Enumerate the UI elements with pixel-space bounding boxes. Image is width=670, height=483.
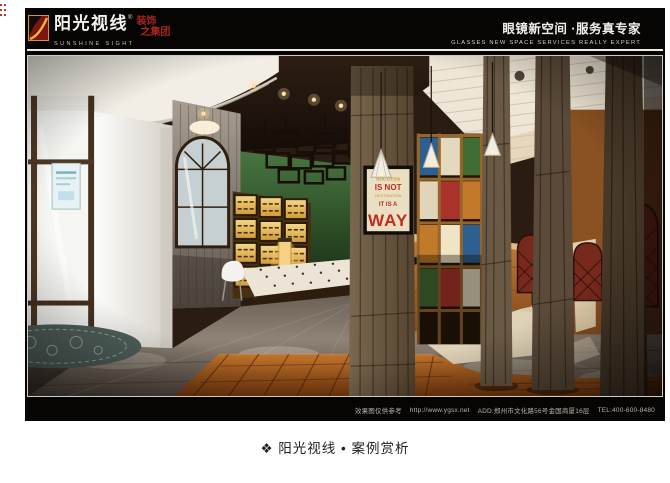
header-divider <box>27 49 663 51</box>
vignette <box>28 56 662 396</box>
interior-render-scene: SUCCESS IS NOT DESTINATION IT IS A WAY <box>28 56 662 396</box>
tagline-en: GLASSES NEW SPACE SERVICES REALLY EXPERT <box>451 40 641 46</box>
page-edge-artifact <box>0 4 2 6</box>
brand-name-en: SUNSHINE SIGHT <box>54 41 170 47</box>
article-caption: ❖ 阳光视线 • 案例赏析 <box>0 437 670 457</box>
promo-slide: 阳光视线 ® 装饰 之集团 SUNSHINE SIGHT 眼镜新空间 ·服务真专… <box>25 8 665 421</box>
footer-website: http://www.ygsx.net <box>410 407 470 414</box>
brand-suffix-line1: 装饰 <box>136 16 156 27</box>
interior-render-image[interactable]: SUCCESS IS NOT DESTINATION IT IS A WAY <box>27 55 663 397</box>
brand-name-cn: 阳光视线 <box>54 15 128 32</box>
article-page: 阳光视线 ® 装饰 之集团 SUNSHINE SIGHT 眼镜新空间 ·服务真专… <box>0 0 670 483</box>
brand-block: 阳光视线 ® 装饰 之集团 SUNSHINE SIGHT <box>54 15 170 47</box>
sunshine-logo-icon <box>28 15 49 41</box>
registered-mark: ® <box>128 15 132 21</box>
tagline-block: 眼镜新空间 ·服务真专家 GLASSES NEW SPACE SERVICES … <box>451 18 641 46</box>
footer-address: ADD:郑州市文化路56号金国商厦16层 <box>478 405 590 415</box>
tagline-cn: 眼镜新空间 ·服务真专家 <box>451 18 641 37</box>
slide-footer: 效果图仅供参考 http://www.ygsx.net ADD:郑州市文化路56… <box>25 399 665 421</box>
brand-suffix: 装饰 之集团 <box>136 16 170 38</box>
footer-phone: TEL:400-600-8480 <box>598 407 655 414</box>
brand-suffix-line2: 之集团 <box>140 27 170 38</box>
footer-disclaimer: 效果图仅供参考 <box>355 405 402 415</box>
slide-header: 阳光视线 ® 装饰 之集团 SUNSHINE SIGHT 眼镜新空间 ·服务真专… <box>25 8 665 52</box>
